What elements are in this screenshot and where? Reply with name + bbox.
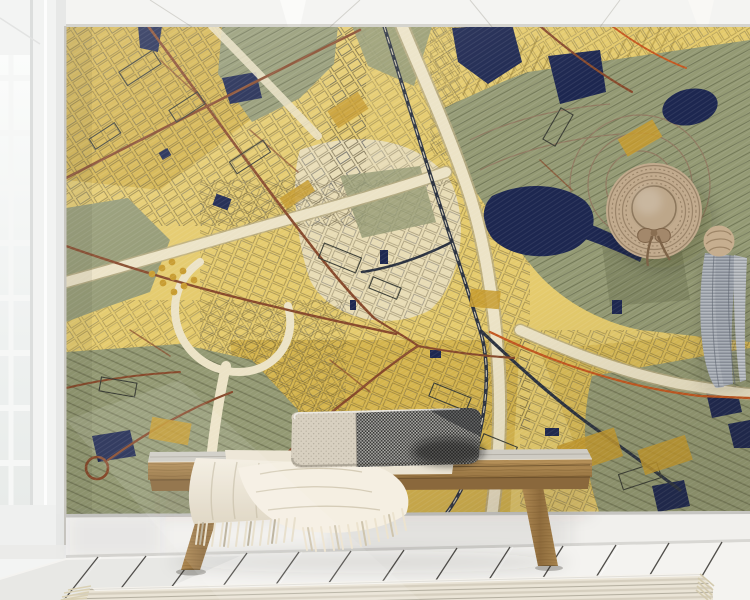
window-bottom-rail (0, 505, 56, 547)
window-glass (0, 55, 30, 505)
room-scene (0, 0, 750, 600)
window-sill (0, 545, 66, 559)
right-foot-shadow (535, 565, 563, 571)
ceiling-shadow-line (60, 24, 750, 27)
window-frame-stile (30, 0, 56, 545)
hat-highlight (634, 187, 662, 215)
ceiling (60, 0, 750, 27)
mockup-photo (0, 0, 750, 600)
scarf-stripes (700, 253, 747, 388)
window (0, 0, 67, 600)
lumbar-pillow (291, 408, 484, 468)
wall-corner-seam (64, 26, 67, 546)
